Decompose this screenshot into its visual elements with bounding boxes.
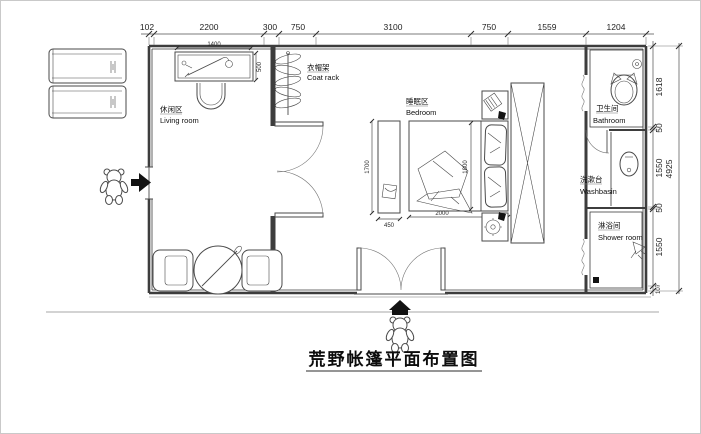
floor-plan-canvas: 衣帽架 Coat rack 1400 500 休闲区 Living room	[0, 0, 701, 434]
coat-rack-label-zh: 衣帽架	[307, 62, 330, 72]
entrance-arrow-left-icon	[131, 173, 151, 192]
nightstand-top	[482, 91, 508, 120]
ceiling-light-icon	[633, 60, 642, 69]
dim-top-750: 750	[291, 22, 305, 32]
drawing-title: 荒野帐篷平面布置图	[306, 349, 482, 371]
desk-width-dim: 1400	[207, 42, 221, 48]
bedroom-label-zh: 睡眠区	[406, 97, 429, 106]
dim-top-1559: 1559	[538, 22, 557, 32]
bedroom-label-en: Bedroom	[406, 108, 436, 117]
floor-drain-icon	[593, 277, 599, 283]
living-room-label: 休闲区 Living room	[160, 104, 199, 125]
dim-top-1204: 1204	[607, 22, 626, 32]
shower-label-zh: 淋浴间	[598, 220, 621, 230]
floor-plan-drawing: 衣帽架 Coat rack 1400 500 休闲区 Living room	[1, 1, 701, 434]
title-text: 荒野帐篷平面布置图	[308, 349, 480, 369]
dim-right-50b: 50	[654, 203, 664, 213]
dim-top-2200: 2200	[200, 22, 219, 32]
bed-width-dim: 1800	[463, 160, 469, 174]
entry-double-door	[354, 248, 448, 294]
entrance-arrow-bottom-icon	[389, 300, 411, 315]
coat-rack-label-en: Coat rack	[307, 73, 339, 82]
bed-length-dim: 2000	[435, 211, 449, 217]
living-room-label-en: Living room	[160, 116, 199, 125]
curtain-door-icon	[582, 75, 584, 111]
dim-top-300: 300	[263, 22, 277, 32]
dim-top-102: 102	[140, 22, 154, 32]
bench-width-dim: 450	[384, 223, 395, 229]
entrance-bottom-bear-icon	[385, 317, 416, 353]
armchair-left	[153, 250, 193, 291]
dim-right-1618: 1618	[654, 77, 664, 96]
coat-rack-label: 衣帽架 Coat rack	[307, 62, 339, 82]
dimension-chain-right: 1618 50 1550 50 1550 107 4925	[648, 41, 683, 296]
armchair-right	[242, 250, 282, 291]
double-door-living-bedroom	[275, 122, 323, 217]
curtain-door-icon	[582, 239, 584, 275]
desk-depth-dim: 500	[257, 61, 263, 72]
toilet-icon	[611, 73, 637, 105]
dim-top-3100: 3100	[384, 22, 403, 32]
wardrobe	[511, 83, 544, 243]
washbasin-label-zh: 洗漱台	[580, 174, 603, 184]
dim-right-50a: 50	[654, 123, 664, 133]
desk-chair	[197, 83, 225, 109]
shower-room-label: 淋浴间 Shower room	[598, 220, 643, 242]
dim-right-total-4925: 4925	[664, 159, 674, 178]
basin-icon	[620, 152, 638, 176]
bedroom-label: 睡眠区 Bedroom	[406, 97, 436, 117]
bed	[409, 121, 508, 213]
bathroom-label-zh: 卫生间	[596, 103, 619, 113]
coat-rack	[274, 52, 301, 116]
bathroom-label: 卫生间 Bathroom	[593, 103, 626, 125]
loungers	[49, 49, 126, 118]
nightstand-bottom	[482, 212, 508, 241]
round-table	[194, 245, 243, 294]
dim-right-1550b: 1550	[654, 237, 664, 256]
dim-right-1550a: 1550	[654, 158, 664, 177]
bathroom-label-en: Bathroom	[593, 116, 626, 125]
dim-top-750b: 750	[482, 22, 496, 32]
dim-right-107: 107	[656, 283, 662, 294]
desk	[175, 52, 253, 81]
bench-length-dim: 1700	[365, 160, 371, 174]
living-room-label-zh: 休闲区	[160, 104, 183, 114]
washbasin-label-en: Washbasin	[580, 187, 617, 196]
shower-label-en: Shower room	[598, 233, 643, 242]
entrance-left-bear-icon	[99, 169, 130, 205]
bench	[378, 121, 400, 213]
